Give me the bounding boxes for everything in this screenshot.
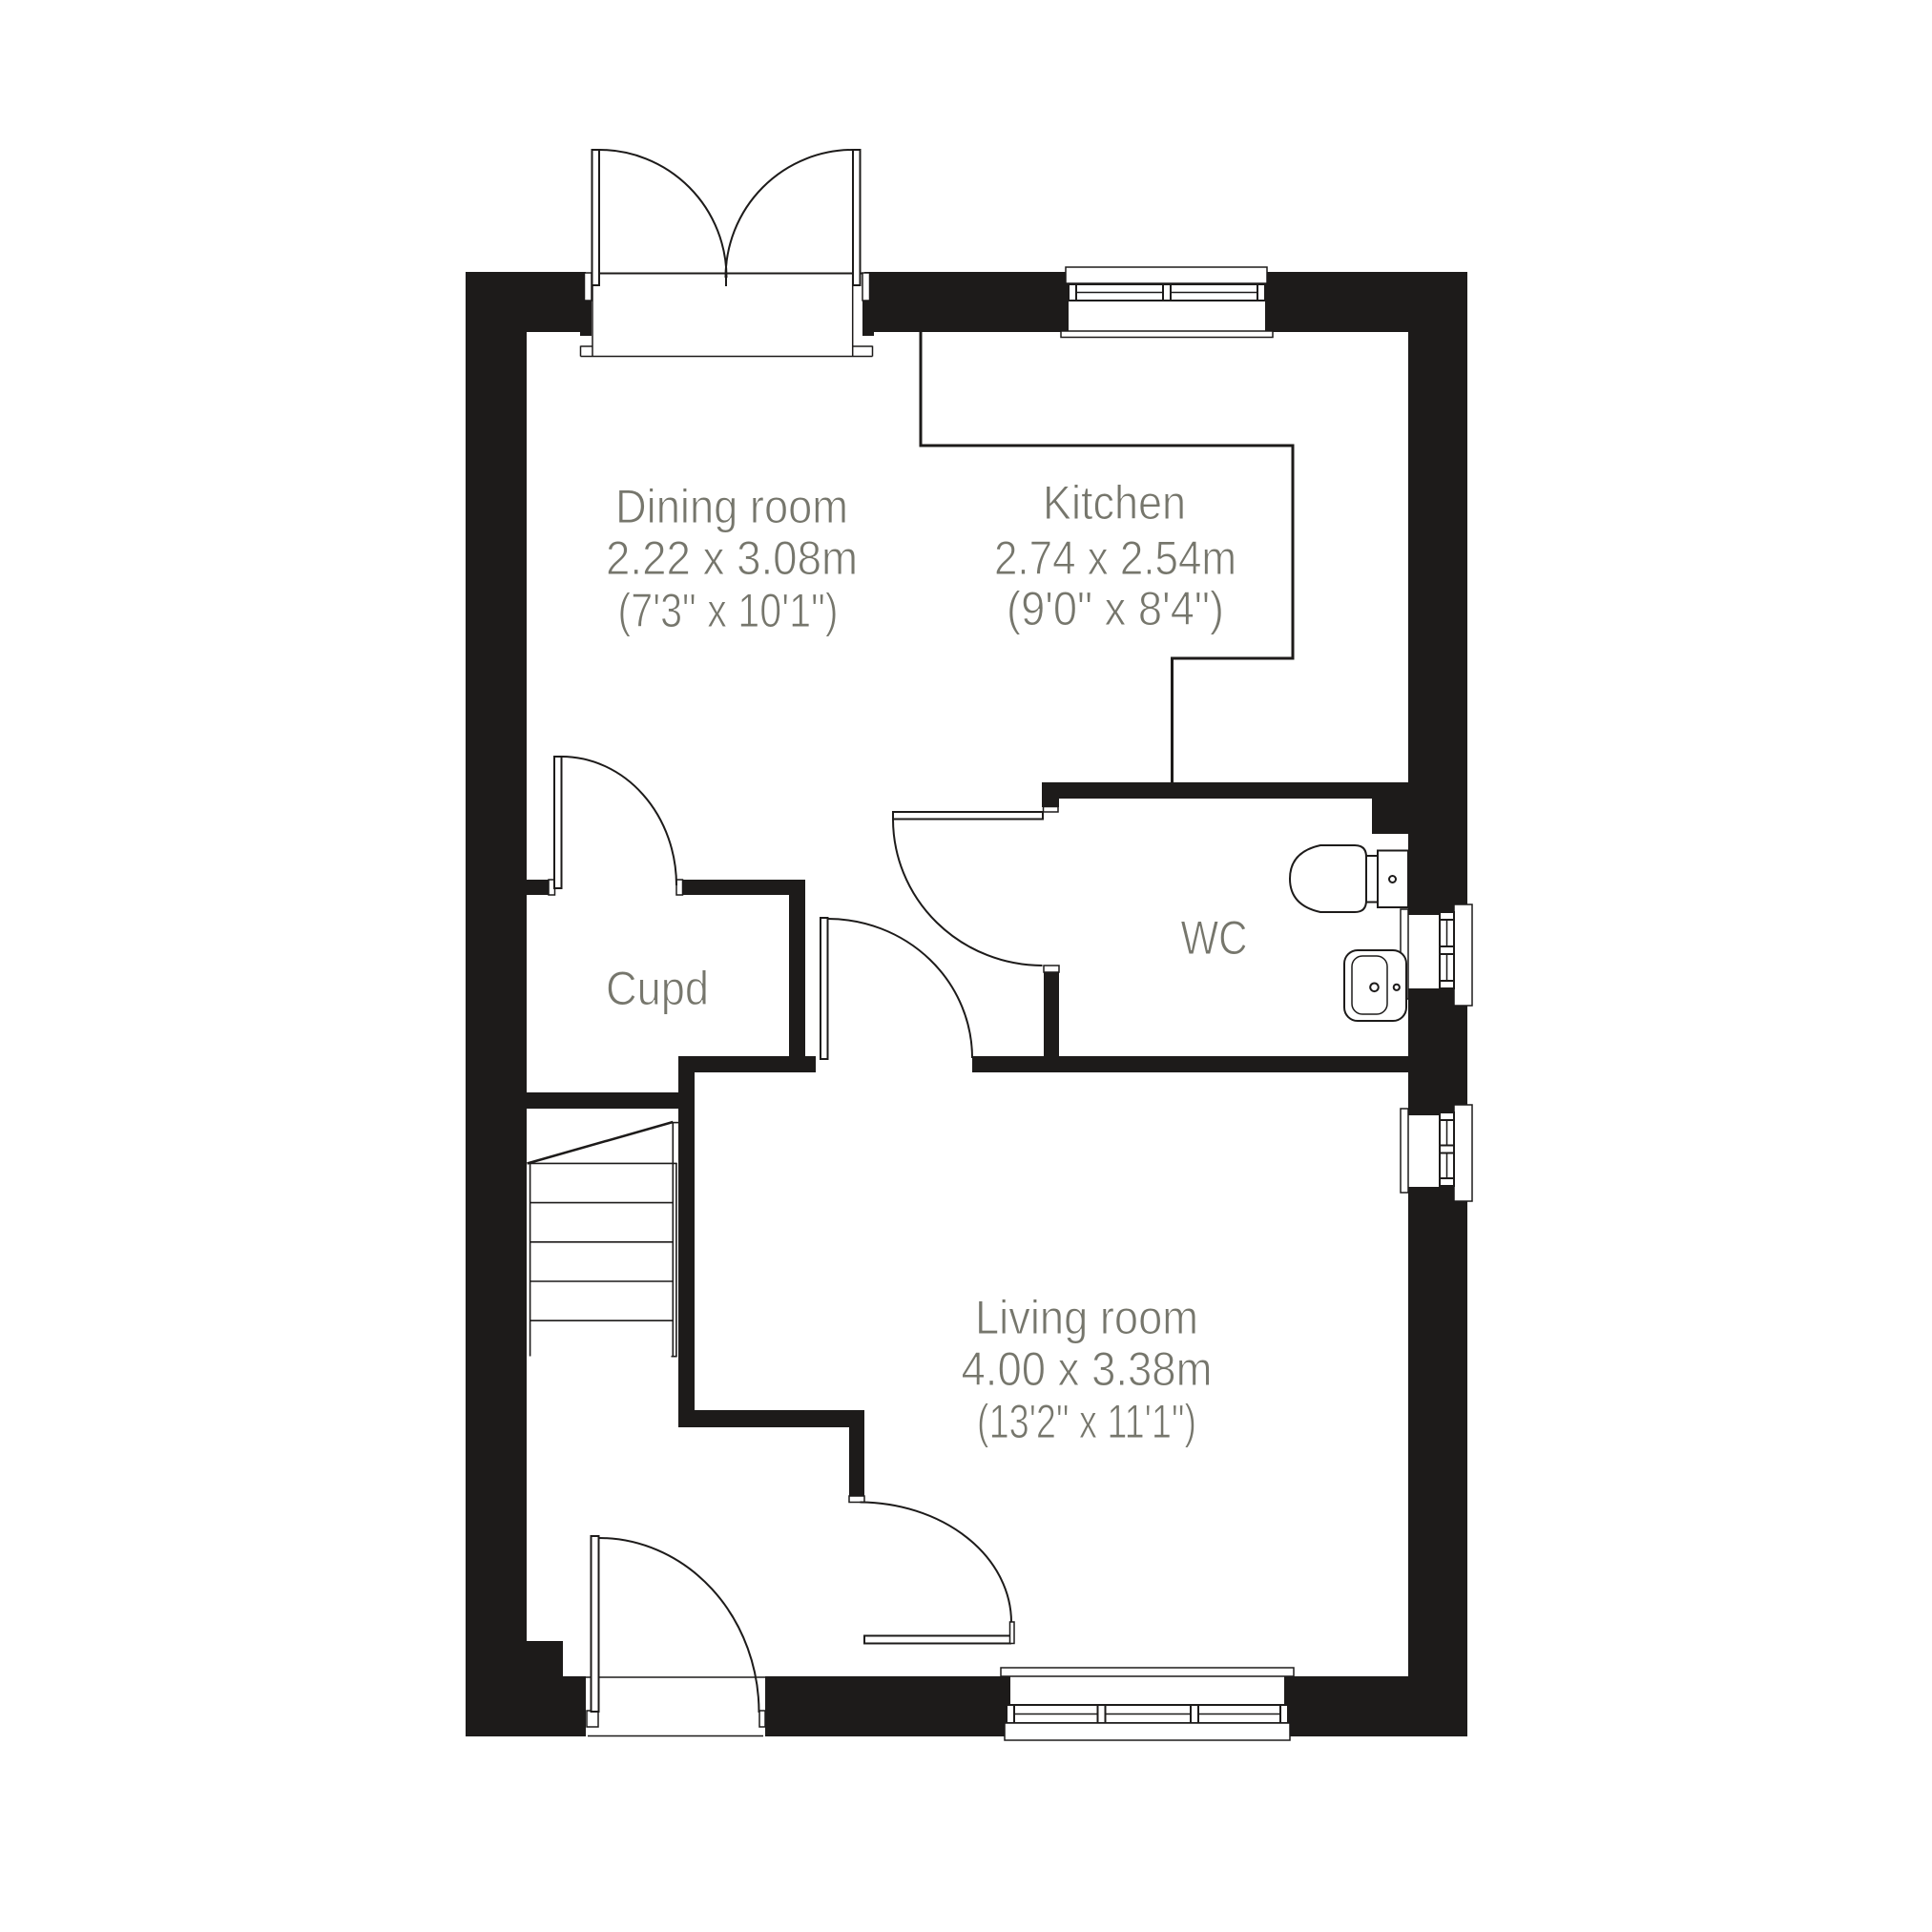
svg-text:(7'3" x 10'1"): (7'3" x 10'1") (618, 584, 839, 637)
svg-text:2.22 x 3.08m: 2.22 x 3.08m (606, 531, 858, 585)
svg-text:Kitchen: Kitchen (1043, 476, 1186, 530)
svg-text:Cupd: Cupd (606, 962, 709, 1015)
svg-text:(13'2" x 11'1"): (13'2" x 11'1") (977, 1395, 1196, 1448)
svg-text:(9'0" x 8'4"): (9'0" x 8'4") (1007, 582, 1224, 635)
svg-text:Living room: Living room (975, 1291, 1198, 1344)
svg-text:4.00 x 3.38m: 4.00 x 3.38m (962, 1342, 1213, 1396)
svg-text:Dining room: Dining room (615, 480, 848, 533)
svg-text:2.74 x 2.54m: 2.74 x 2.54m (994, 531, 1236, 585)
svg-text:WC: WC (1181, 911, 1248, 965)
